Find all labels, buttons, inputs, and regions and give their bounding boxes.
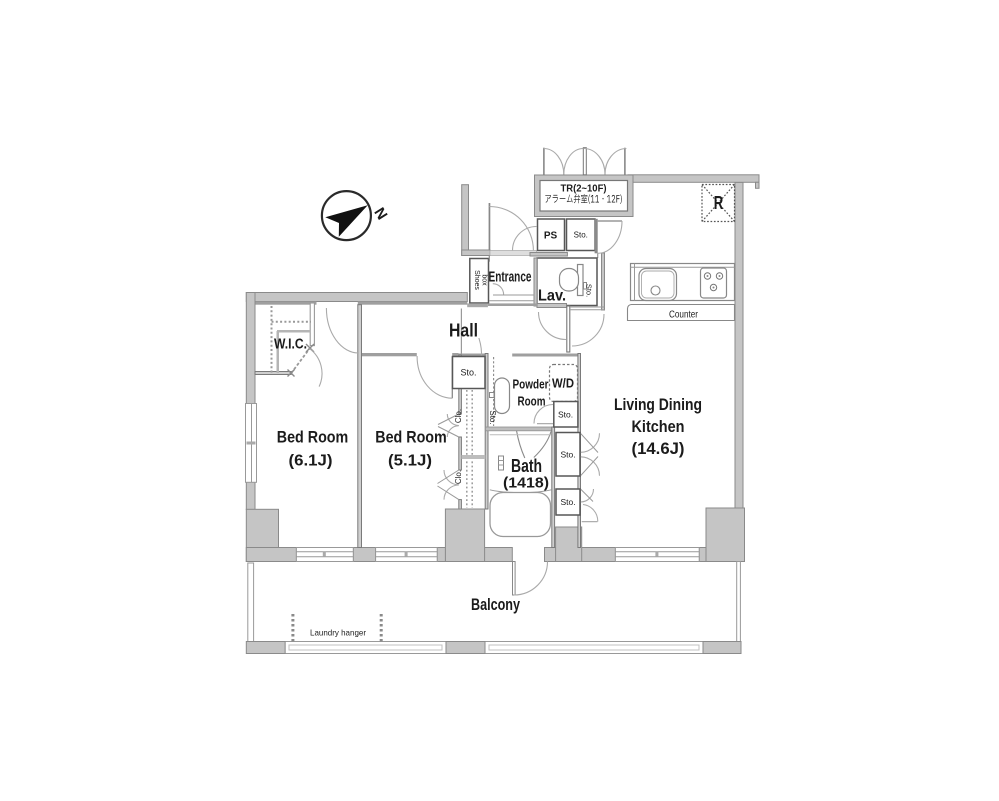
svg-text:Balcony: Balcony <box>471 595 520 614</box>
svg-text:PS: PS <box>544 231 558 242</box>
svg-text:(5.1J): (5.1J) <box>388 453 432 470</box>
svg-text:Sto.: Sto. <box>558 410 573 420</box>
svg-text:Bed Room: Bed Room <box>375 428 447 447</box>
svg-text:Sto.: Sto. <box>560 497 575 507</box>
svg-text:Living Dining: Living Dining <box>614 395 702 414</box>
svg-text:Lav.: Lav. <box>538 288 566 305</box>
svg-text:Laundry hanger: Laundry hanger <box>310 628 366 638</box>
svg-text:Shoes: Shoes <box>473 270 480 290</box>
svg-text:Sto.: Sto. <box>460 368 476 378</box>
svg-text:Bed Room: Bed Room <box>277 428 349 447</box>
svg-text:Clo.: Clo. <box>454 409 463 423</box>
svg-text:Clo.: Clo. <box>454 470 463 484</box>
svg-text:Sto.: Sto. <box>560 450 575 460</box>
svg-text:W/D: W/D <box>552 376 574 391</box>
svg-text:Sto.: Sto. <box>488 410 497 424</box>
svg-text:Kitchen: Kitchen <box>632 417 685 436</box>
svg-text:Powder: Powder <box>513 377 549 392</box>
svg-text:Sto.: Sto. <box>574 231 588 240</box>
svg-text:Hall: Hall <box>449 321 478 341</box>
svg-text:Entrance: Entrance <box>489 269 532 286</box>
svg-text:(1418): (1418) <box>503 475 549 492</box>
svg-text:(6.1J): (6.1J) <box>289 453 333 470</box>
svg-text:Sto.: Sto. <box>585 284 594 297</box>
svg-text:Bath: Bath <box>511 456 542 476</box>
svg-text:TR(2~10F): TR(2~10F) <box>561 183 607 195</box>
svg-text:Counter: Counter <box>669 310 699 321</box>
svg-text:box: box <box>481 274 488 286</box>
svg-text:Room: Room <box>518 394 546 409</box>
svg-text:(14.6J): (14.6J) <box>632 439 685 458</box>
svg-text:R: R <box>714 192 724 213</box>
svg-text:W.I.C.: W.I.C. <box>274 337 307 353</box>
